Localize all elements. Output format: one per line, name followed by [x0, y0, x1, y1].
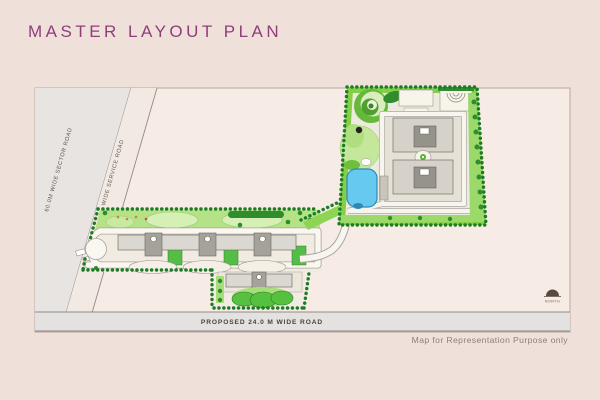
map-disclaimer: Map for Representation Purpose only — [412, 335, 569, 345]
page-title: MASTER LAYOUT PLAN — [28, 22, 282, 42]
site-plan-drawing: 60.0M WIDE SECTOR ROAD 12 M WIDE SERVICE… — [0, 0, 600, 400]
tower-building-a — [393, 118, 453, 152]
tower-building-b — [393, 160, 453, 194]
proposed-road: PROPOSED 24.0 M WIDE ROAD — [35, 312, 570, 331]
upper-towers-cluster — [338, 86, 486, 226]
pool-deck — [380, 176, 388, 200]
forecourt-oval — [129, 261, 177, 274]
lawn — [340, 215, 483, 223]
hedge-strip — [228, 211, 284, 218]
north-label: NORTH — [545, 300, 560, 304]
forecourt-oval — [238, 261, 286, 274]
shade-tree — [356, 127, 362, 133]
master-layout-plan-page: MASTER LAYOUT PLAN 60.0M WIDE SECTOR ROA… — [0, 0, 600, 400]
proposed-road-label: PROPOSED 24.0 M WIDE ROAD — [201, 319, 323, 326]
